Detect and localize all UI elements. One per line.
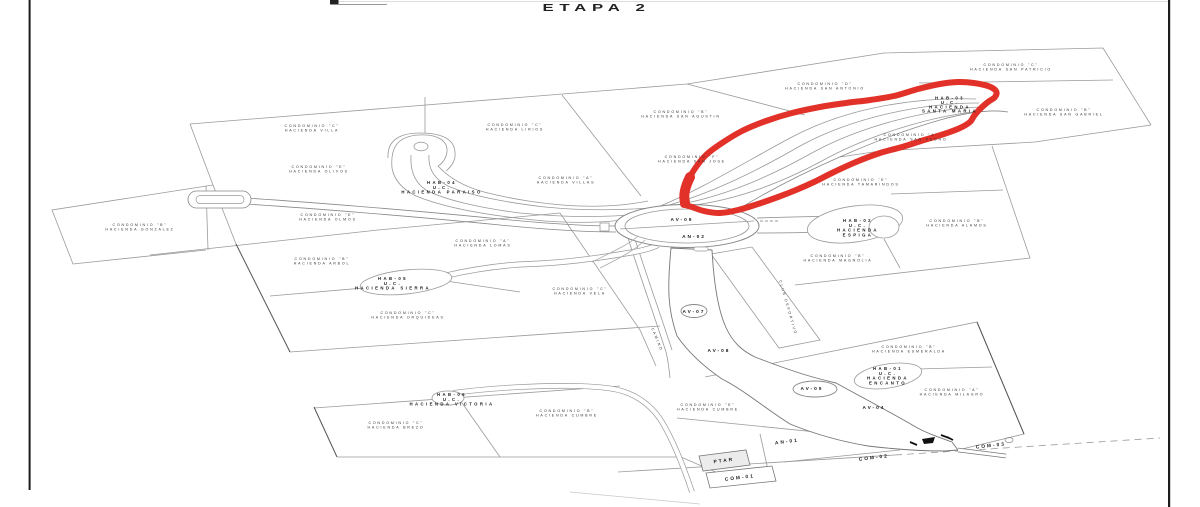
svg-text:CONDOMINIO "B"HACIENDA MAGNOLI: CONDOMINIO "B"HACIENDA MAGNOLIA [804,254,873,262]
svg-text:AV-04: AV-04 [863,405,886,411]
svg-text:CONDOMINIO "E"HACIENDA TAMARIN: CONDOMINIO "E"HACIENDA TAMARINDOS [822,178,899,186]
svg-text:AV-05: AV-05 [801,386,824,392]
svg-text:HAB-01U.C.HACIENDAENCANTO: HAB-01U.C.HACIENDAENCANTO [867,366,909,385]
svg-text:CONDOMINIO "E"HACIENDA OLIVOS: CONDOMINIO "E"HACIENDA OLIVOS [289,165,349,173]
svg-text:CONDOMINIO "A"HACIENDA MILAGRO: CONDOMINIO "A"HACIENDA MILAGRO [920,388,985,396]
svg-text:CONDOMINIO "B"HACIENDA ARBOL: CONDOMINIO "B"HACIENDA ARBOL [294,257,351,265]
svg-text:AV-07: AV-07 [683,309,706,315]
svg-text:CONDOMINIO "E"HACIENDA OLMOS: CONDOMINIO "E"HACIENDA OLMOS [299,213,357,221]
svg-text:CONDOMINIO "E"HACIENDA CUMBRE: CONDOMINIO "E"HACIENDA CUMBRE [677,403,739,411]
svg-text:CONDOMINIO "A"HACIENDA SAN PED: CONDOMINIO "A"HACIENDA SAN PEDRO [875,133,948,141]
svg-text:CONDOMINIO "F"HACIENDA SAN JOS: CONDOMINIO "F"HACIENDA SAN JOSE [658,155,726,163]
svg-text:CONDOMINIO "C"HACIENDA VILLA: CONDOMINIO "C"HACIENDA VILLA [284,124,339,132]
svg-text:CONDOMINIO "C"HACIENDA VELA: CONDOMINIO "C"HACIENDA VELA [552,287,607,295]
svg-text:CONDOMINIO "A"HACIENDA VILLAS: CONDOMINIO "A"HACIENDA VILLAS [537,176,596,184]
svg-text:AV-08: AV-08 [708,348,731,354]
svg-text:CONDOMINIO "B"HACIENDA CUMBRE: CONDOMINIO "B"HACIENDA CUMBRE [536,409,598,417]
svg-text:ETAPA 2: ETAPA 2 [542,1,650,13]
svg-text:CONDOMINIO "B"HACIENDA ESMERAL: CONDOMINIO "B"HACIENDA ESMERALDA [872,345,946,353]
svg-text:CONDOMINIO "B"HACIENDA ALAMOS: CONDOMINIO "B"HACIENDA ALAMOS [926,219,987,227]
svg-text:AV-09: AV-09 [671,217,694,223]
svg-text:CONDOMINIO "C"HACIENDA LIRIOS: CONDOMINIO "C"HACIENDA LIRIOS [486,123,544,131]
svg-text:CONDOMINIO "C"HACIENDA BREZO: CONDOMINIO "C"HACIENDA BREZO [368,421,425,429]
svg-text:CONDOMINIO "A"HACIENDA LOMAS: CONDOMINIO "A"HACIENDA LOMAS [454,239,511,247]
svg-text:AN-02: AN-02 [682,234,706,240]
svg-text:CONDOMINIO "C"HACIENDA ORQUIDE: CONDOMINIO "C"HACIENDA ORQUIDEAS [371,311,444,319]
svg-text:HAB-02U.C.HACIENDAESPIGA: HAB-02U.C.HACIENDAESPIGA [837,218,879,237]
svg-text:CONDOMINIO "B"HACIENDA GONZALE: CONDOMINIO "B"HACIENDA GONZALEZ [105,223,174,231]
